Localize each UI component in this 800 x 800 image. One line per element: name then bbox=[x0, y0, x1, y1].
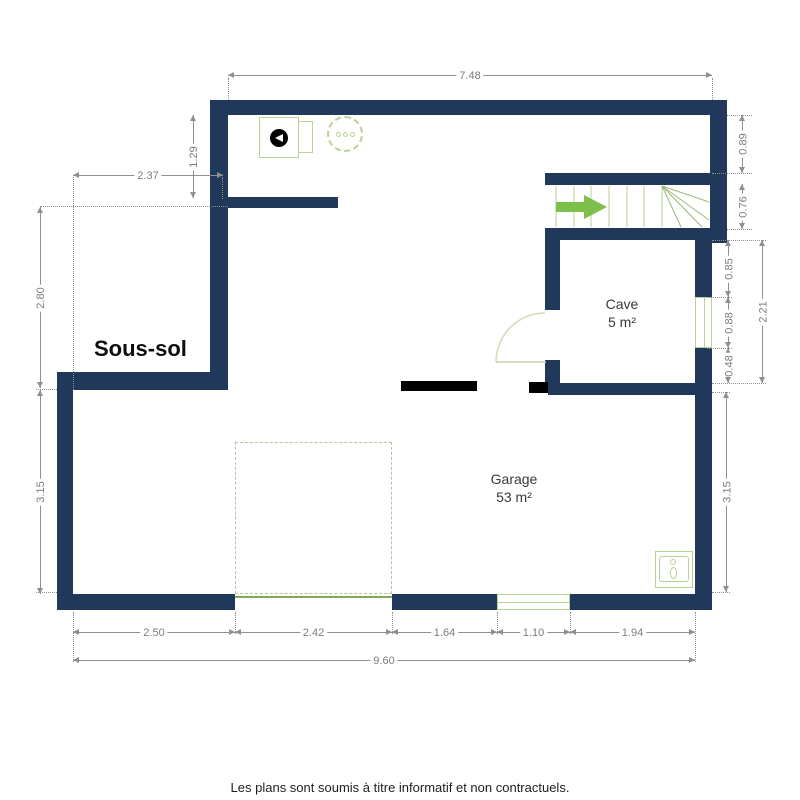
window-glass-line bbox=[704, 298, 705, 347]
extension-line bbox=[40, 206, 228, 207]
wall-right-upper bbox=[710, 100, 727, 243]
extension-line bbox=[707, 348, 732, 349]
dimension-cave-total: 2.21 bbox=[762, 240, 763, 383]
dimension-nook-width: 2.37 bbox=[73, 175, 223, 176]
dimension-right-top: 0.89 bbox=[742, 115, 743, 173]
sink-drain bbox=[670, 567, 677, 579]
stairs-and-door-drawing bbox=[0, 0, 800, 800]
stair-winders bbox=[662, 186, 709, 227]
wall-bottom-seg3 bbox=[570, 594, 712, 610]
extension-line bbox=[712, 173, 752, 174]
water-heater-dot bbox=[336, 132, 341, 137]
dimension-bottom-1: 2.50 bbox=[73, 632, 235, 633]
dimension-label: 1.29 bbox=[188, 143, 200, 170]
extension-line bbox=[712, 383, 766, 384]
wall-bottom-seg1 bbox=[57, 594, 235, 610]
extension-line bbox=[712, 240, 766, 241]
wall-cave-right-upper bbox=[695, 240, 712, 297]
disclaimer-text: Les plans sont soumis à titre informatif… bbox=[0, 780, 800, 795]
room-label-cave: Cave 5 m² bbox=[582, 295, 662, 331]
dimension-stair-height: 0.76 bbox=[742, 184, 743, 229]
extension-line bbox=[727, 115, 752, 116]
wall-bottom-seg2 bbox=[392, 594, 497, 610]
extension-line bbox=[222, 177, 223, 199]
stairs-direction-arrow-icon bbox=[556, 195, 607, 219]
dimension-label: 3.15 bbox=[35, 478, 47, 505]
wall-cave-bottom bbox=[548, 383, 712, 395]
room-area: 53 m² bbox=[474, 488, 554, 506]
dimension-right-lower: 3.15 bbox=[726, 392, 727, 592]
dimension-cave-right-top: 0.85 bbox=[728, 240, 729, 297]
extension-line bbox=[235, 612, 236, 634]
window-bottom bbox=[497, 594, 570, 610]
parking-space-outline bbox=[235, 442, 392, 594]
dimension-cave-window: 0.88 bbox=[728, 297, 729, 348]
window-glass-line bbox=[498, 602, 569, 603]
extension-line bbox=[392, 612, 393, 634]
extension-line bbox=[712, 78, 713, 100]
dimension-label: 1.64 bbox=[431, 627, 458, 639]
dimension-cave-right-bottom: 0.48 bbox=[728, 348, 729, 383]
dimension-label: 1.10 bbox=[520, 627, 547, 639]
dimension-top-total: 7.48 bbox=[228, 75, 712, 76]
extension-line bbox=[228, 78, 229, 100]
wall-interior-stub bbox=[228, 197, 338, 208]
wall-cave-left-upper bbox=[545, 240, 560, 310]
dimension-label: 0.76 bbox=[737, 193, 749, 220]
dimension-label: 2.50 bbox=[140, 627, 167, 639]
wall-black-beam bbox=[401, 381, 477, 391]
dimension-left-lower: 3.15 bbox=[40, 390, 41, 594]
extension-line bbox=[727, 229, 752, 230]
room-name: Cave bbox=[582, 295, 662, 313]
dimension-label: 0.48 bbox=[723, 352, 735, 379]
extension-line bbox=[73, 177, 74, 390]
extension-line bbox=[570, 612, 571, 634]
wall-cave-left-lower bbox=[545, 360, 560, 383]
garage-door-line bbox=[235, 596, 392, 598]
wall-stair-top bbox=[545, 173, 710, 185]
wall-top bbox=[210, 100, 727, 115]
wall-mid-left bbox=[57, 372, 228, 390]
water-heater-dot bbox=[343, 132, 348, 137]
room-label-garage: Garage 53 m² bbox=[474, 470, 554, 506]
dimension-label: 9.60 bbox=[370, 655, 397, 667]
boiler-burner-icon bbox=[270, 129, 288, 147]
dimension-label: 1.94 bbox=[619, 627, 646, 639]
stair-treads bbox=[556, 186, 662, 227]
room-area: 5 m² bbox=[582, 313, 662, 331]
dimension-label: 2.42 bbox=[300, 627, 327, 639]
dimension-label: 2.37 bbox=[134, 170, 161, 182]
extension-line bbox=[707, 297, 732, 298]
floor-title: Sous-sol bbox=[94, 336, 187, 362]
dimension-label: 0.89 bbox=[737, 130, 749, 157]
dimension-label: 0.88 bbox=[723, 309, 735, 336]
dimension-bottom-2: 2.42 bbox=[235, 632, 392, 633]
water-heater-dot bbox=[350, 132, 355, 137]
boiler-side-unit bbox=[298, 121, 313, 153]
extension-line bbox=[712, 392, 730, 393]
wall-black-stub bbox=[529, 382, 548, 393]
wall-left-lower bbox=[57, 372, 73, 610]
basement-floor-plan: 7.48 2.37 1.29 2.80 3.15 0.89 0.76 0.85 … bbox=[0, 0, 800, 800]
dimension-label: 2.80 bbox=[35, 284, 47, 311]
wall-stair-bottom bbox=[545, 228, 727, 240]
extension-line bbox=[695, 612, 696, 662]
dimension-bottom-total: 9.60 bbox=[73, 660, 695, 661]
extension-line bbox=[497, 612, 498, 634]
dimension-bottom-5: 1.94 bbox=[570, 632, 695, 633]
dimension-bottom-3: 1.64 bbox=[392, 632, 497, 633]
dimension-label: 3.15 bbox=[721, 478, 733, 505]
extension-line bbox=[712, 592, 730, 593]
extension-line bbox=[36, 592, 57, 593]
cave-door-arc bbox=[496, 313, 545, 362]
dimension-label: 2.21 bbox=[757, 298, 769, 325]
extension-line bbox=[73, 612, 74, 662]
sink-faucet-dot bbox=[670, 559, 676, 565]
dimension-left-upper: 2.80 bbox=[40, 207, 41, 388]
dimension-label: 7.48 bbox=[456, 70, 483, 82]
dimension-bottom-4: 1.10 bbox=[497, 632, 570, 633]
wall-left-upper bbox=[210, 100, 228, 390]
room-name: Garage bbox=[474, 470, 554, 488]
dimension-stub-offset: 1.29 bbox=[193, 115, 194, 198]
water-heater-icon bbox=[327, 116, 363, 152]
dimension-label: 0.85 bbox=[723, 255, 735, 282]
window-cave bbox=[695, 297, 712, 348]
